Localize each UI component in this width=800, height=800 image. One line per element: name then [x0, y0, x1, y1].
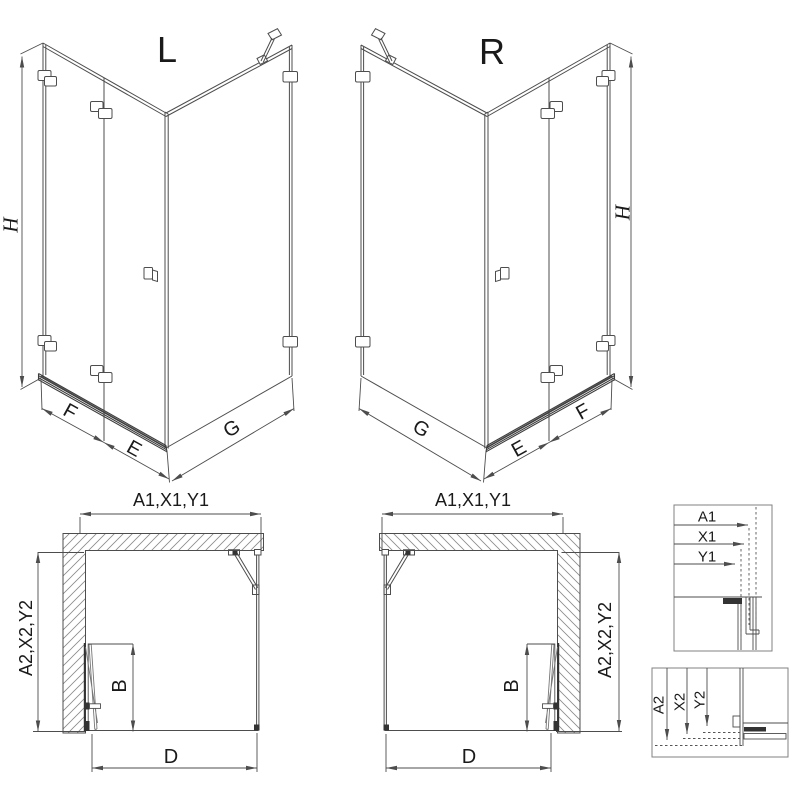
- detail-depth-box: [652, 668, 788, 757]
- plan-right-depth-dims-label: A2,X2,Y2: [596, 602, 614, 678]
- iso-right-variant-label: R: [479, 34, 505, 70]
- plan-left-drawing: [63, 534, 264, 734]
- plan-left-front-width-label: D: [164, 747, 178, 767]
- iso-left-height-label: H: [1, 217, 22, 232]
- detail-width-box: [674, 505, 772, 651]
- detail-x1-label: X1: [698, 530, 716, 545]
- plan-left-door-width-label: B: [110, 679, 130, 692]
- detail-a2-label: A2: [652, 696, 667, 714]
- detail-y1-label: Y1: [698, 550, 716, 565]
- reference-dashed-lines: [741, 507, 756, 640]
- plan-right-door-width-label: B: [502, 679, 522, 692]
- technical-drawing-sheet: L H F E G R H F E G A1,X1,Y1 A2,X2,Y2 B …: [0, 0, 800, 800]
- detail-x2-label: X2: [673, 693, 688, 711]
- plan-left-width-dims-label: A1,X1,Y1: [133, 491, 209, 509]
- detail-y2-label: Y2: [693, 691, 708, 709]
- plan-right-width-dims-label: A1,X1,Y1: [435, 491, 511, 509]
- plan-left-depth-dims-label: A2,X2,Y2: [17, 600, 35, 676]
- iso-right-height-label: H: [612, 204, 633, 219]
- plan-right-dimensions: [382, 514, 622, 772]
- detail-a1-label: A1: [698, 510, 716, 525]
- plan-right-drawing: [380, 534, 581, 734]
- plan-right-front-width-label: D: [462, 747, 476, 767]
- reference-dashed-lines: [655, 733, 742, 746]
- iso-left-variant-label: L: [157, 32, 177, 68]
